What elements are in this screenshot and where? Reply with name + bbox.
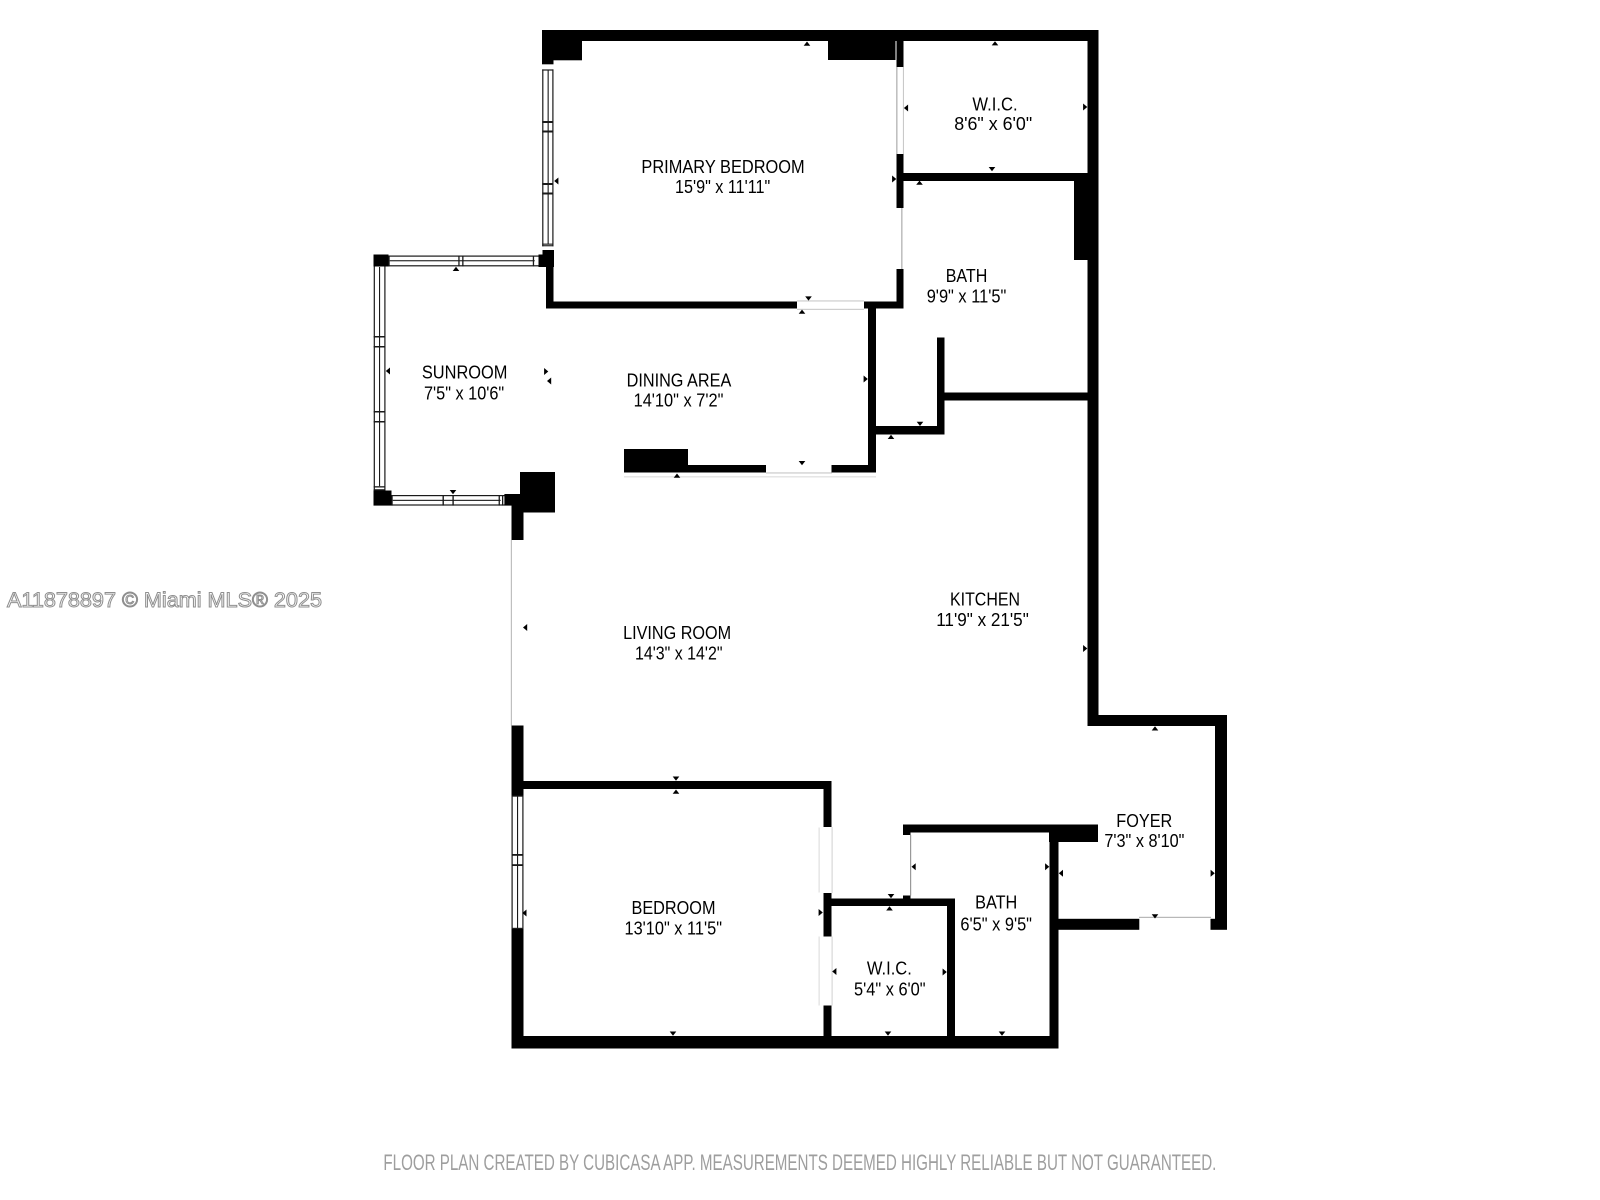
svg-text:6'5" x 9'5": 6'5" x 9'5": [960, 914, 1032, 934]
svg-text:LIVING ROOM: LIVING ROOM: [623, 623, 731, 643]
svg-text:BEDROOM: BEDROOM: [632, 898, 716, 918]
svg-text:7'3" x 8'10": 7'3" x 8'10": [1104, 831, 1184, 851]
svg-text:15'9" x 11'11": 15'9" x 11'11": [675, 177, 770, 197]
svg-text:FLOOR PLAN CREATED BY CUBICASA: FLOOR PLAN CREATED BY CUBICASA APP. MEAS…: [383, 1150, 1216, 1175]
svg-text:DINING AREA: DINING AREA: [627, 370, 732, 390]
svg-text:5'4" x 6'0": 5'4" x 6'0": [854, 980, 926, 1000]
svg-text:13'10" x 11'5": 13'10" x 11'5": [625, 918, 723, 938]
svg-text:11'9" x 21'5": 11'9" x 21'5": [936, 610, 1029, 630]
svg-text:SUNROOM: SUNROOM: [422, 363, 508, 383]
svg-text:7'5" x 10'6": 7'5" x 10'6": [424, 383, 504, 403]
svg-text:14'10" x 7'2": 14'10" x 7'2": [634, 391, 724, 411]
svg-text:FOYER: FOYER: [1116, 811, 1172, 831]
svg-text:BATH: BATH: [946, 266, 988, 286]
svg-text:PRIMARY BEDROOM: PRIMARY BEDROOM: [641, 157, 804, 177]
svg-text:BATH: BATH: [975, 893, 1017, 913]
svg-text:9'9" x 11'5": 9'9" x 11'5": [927, 286, 1007, 306]
svg-text:8'6" x 6'0": 8'6" x 6'0": [954, 114, 1032, 134]
svg-text:14'3" x 14'2": 14'3" x 14'2": [635, 643, 723, 663]
svg-text:W.I.C.: W.I.C.: [867, 959, 912, 979]
svg-text:W.I.C.: W.I.C.: [972, 94, 1017, 114]
svg-text:A11878897 © Miami MLS® 2025: A11878897 © Miami MLS® 2025: [7, 589, 322, 612]
svg-text:KITCHEN: KITCHEN: [950, 589, 1020, 609]
